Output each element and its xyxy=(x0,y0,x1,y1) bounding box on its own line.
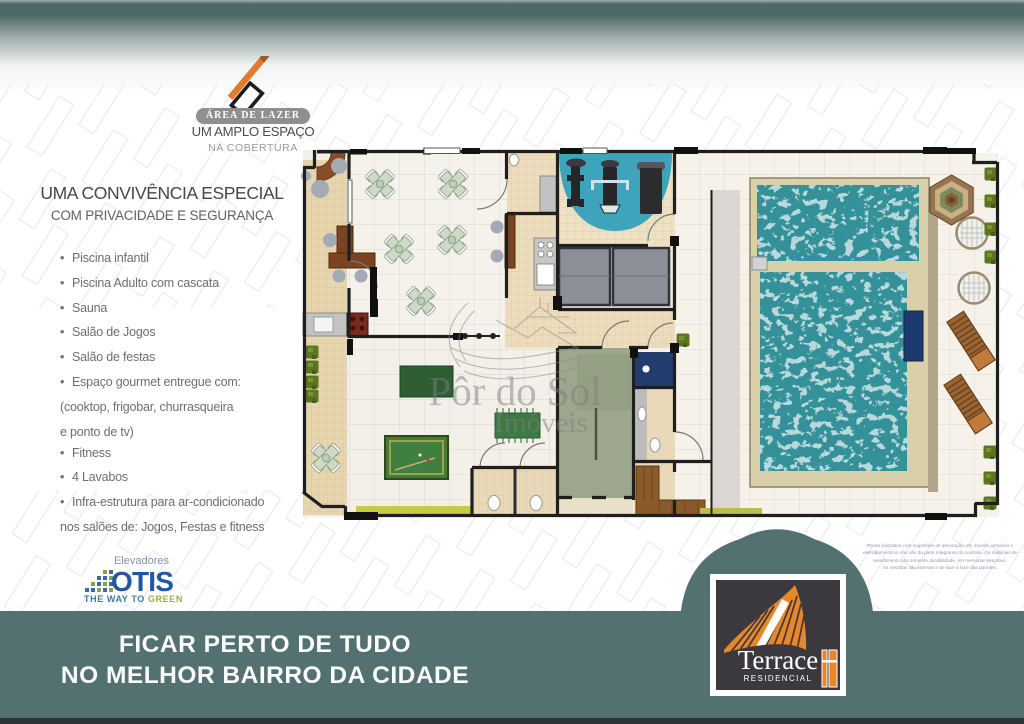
svg-text:RESIDENCIAL: RESIDENCIAL xyxy=(744,674,813,683)
svg-text:Terrace: Terrace xyxy=(738,645,819,675)
svg-text:THE WAY TO GREEN: THE WAY TO GREEN xyxy=(84,594,183,604)
svg-text:OTIS: OTIS xyxy=(111,566,173,597)
